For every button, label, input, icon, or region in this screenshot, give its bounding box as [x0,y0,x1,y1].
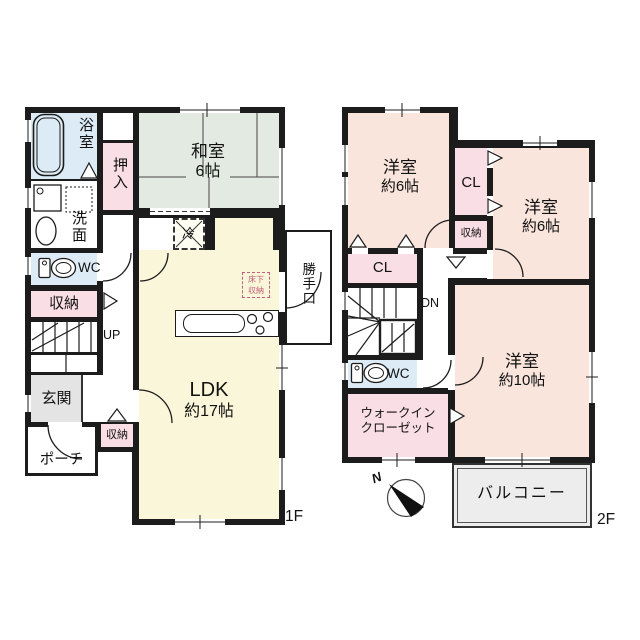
label-closet-center: CL [455,174,487,192]
window [342,145,348,172]
label-tatami-room: 和室 6帖 [160,142,256,182]
entrance-hall [82,375,103,422]
label-entrance: 玄関 [31,390,82,408]
window [523,140,557,146]
label-wc-2f: WC [387,366,410,382]
tatami-room-name: 和室 [160,142,256,162]
compass [388,480,425,518]
tokonoma [103,113,133,140]
door-opening [487,148,493,168]
bedroom-nw-name: 洋室 [350,158,450,178]
label-floor-2f: 2F [597,511,615,530]
corridor [103,215,133,422]
window [279,148,285,205]
label-walk-in-closet: ウォークイン クローゼット [348,406,448,436]
label-oshiire: 押入 [110,157,128,203]
window [342,177,348,205]
stairs-landing [31,355,97,372]
stairs-1f [31,322,97,352]
underfloor-storage-label2: 収納 [248,286,264,295]
door-opening [133,390,139,422]
underfloor-storage: 床下 収納 [242,272,270,298]
label-stairs-up: UP [103,328,120,343]
wic-line1: ウォークイン [348,406,448,421]
label-stairs-down: DN [421,296,439,311]
exterior-cutout [25,476,98,525]
bedroom-ne-size: 約6帖 [491,218,591,236]
window [279,458,285,490]
exterior-cutout [98,452,132,525]
bedroom-nw-size: 約6帖 [350,178,450,196]
window [342,292,348,310]
label-bedroom-nw: 洋室 約6帖 [350,158,450,196]
door-opening [279,272,285,312]
window [25,188,31,208]
door-opening [487,250,493,279]
door-opening [417,360,423,388]
hall-2f [423,254,487,278]
label-ldk: LDK 約17帖 [159,378,259,421]
label-bedroom-ne: 洋室 約6帖 [491,198,591,236]
window [385,107,420,113]
label-entry-storage: 収納 [101,429,133,442]
label-bath: 浴室 [76,117,94,171]
tatami-room-size: 6帖 [160,162,256,181]
door-opening [352,248,368,254]
window [279,345,285,390]
label-back-door: 勝手口 [299,262,315,334]
window [25,120,31,142]
kitchen-upper [215,218,273,250]
door-opening [448,355,455,390]
compass-circle [388,480,425,517]
sliding-opening [150,208,210,215]
kitchen-pass [139,218,173,250]
ldk-name: LDK [159,378,259,402]
wic-line2: クローゼット [348,421,448,436]
label-storage-2f: 収納 [455,227,487,240]
bedroom-south-size: 約10帖 [472,372,572,390]
window [589,352,595,403]
floor-plan-canvas: 床下 収納 [0,0,640,640]
label-wc-1f: WC [78,260,101,276]
label-refrigerator: 冷 [182,226,195,242]
window [180,107,240,113]
label-floor-1f: 1F [285,508,303,527]
ldk-size: 約17帖 [159,402,259,421]
window [342,363,348,380]
label-closet-west: CL [348,259,417,277]
window [25,257,31,275]
underfloor-storage-label1: 床下 [248,275,264,284]
label-balcony: バルコニー [452,484,592,503]
bedroom-south-name: 洋室 [472,352,572,372]
label-hall-storage: 収納 [31,295,97,313]
door-opening [48,422,82,427]
compass-north-label: N [369,469,384,487]
compass-needle [389,484,424,517]
label-washroom: 洗面 [69,210,87,250]
kitchen-sink [183,314,245,333]
room-washroom [31,181,97,248]
label-bedroom-south: 洋室 約10帖 [472,352,572,390]
bedroom-ne-name: 洋室 [491,198,591,218]
label-porch: ポーチ [28,452,95,469]
door-opening [398,248,414,254]
window [175,519,225,525]
stairs-2f [348,288,417,355]
window [382,457,415,463]
hall-2f [423,278,448,388]
